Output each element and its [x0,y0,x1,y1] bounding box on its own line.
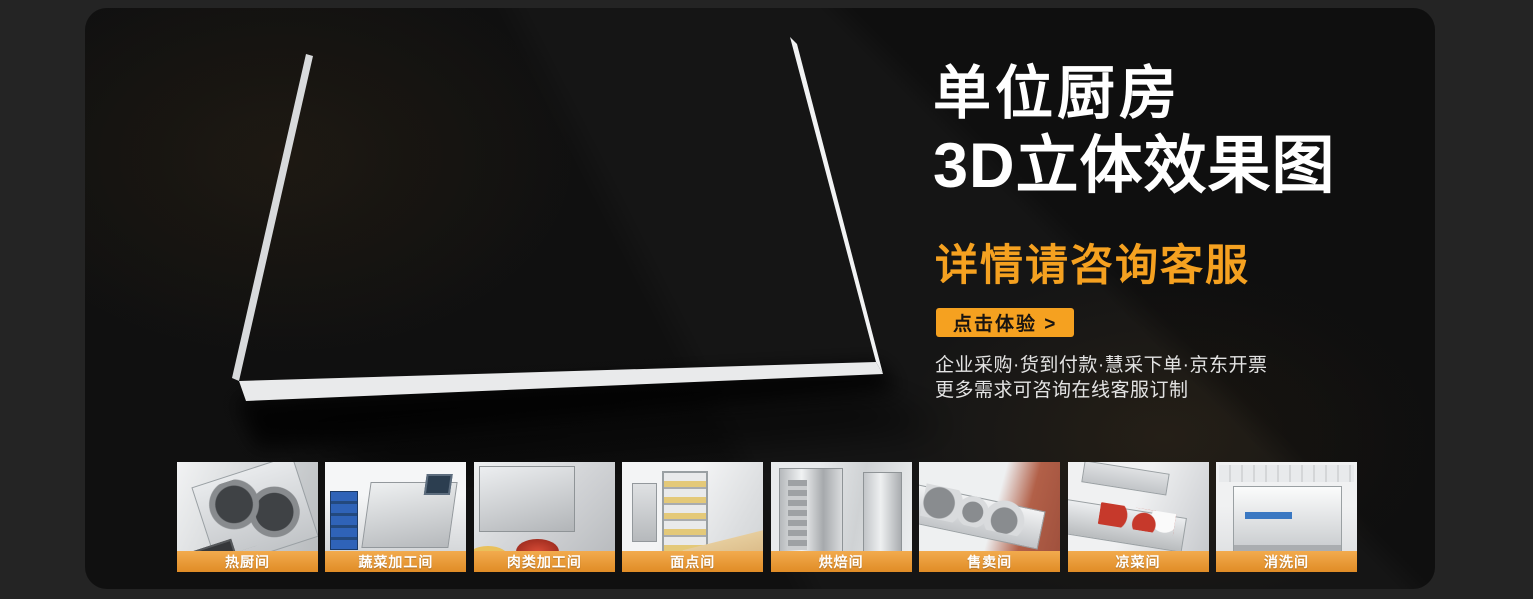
thumbnail-label: 肉类加工间 [474,551,615,572]
outer-walls [239,37,876,381]
blue-dish-machines [303,209,407,234]
thumbnail-label: 热厨间 [177,551,318,572]
right-room-equipment [682,127,852,338]
cook-line [306,127,635,172]
banner-panel: 单位厨房 3D立体效果图 详情请咨询客服 点击体验 > 企业采购·货到付款·慧采… [85,8,1435,589]
hero-title-line2: 3D立体效果图 [933,132,1336,201]
hero-title-line1: 单位厨房 [933,62,1181,126]
page-background: { "hero": { "title_line1": "单位厨房", "titl… [0,0,1533,599]
mid-right-units [652,122,687,214]
thumbnail-item[interactable]: 肉类加工间 [474,462,615,572]
thumbnail-label: 烘焙间 [771,551,912,572]
equipment-shape [479,466,574,532]
food-display-cases [289,317,687,361]
thumbnail-item[interactable]: 烘焙间 [771,462,912,572]
thumbnail-item[interactable]: 蔬菜加工间 [325,462,466,572]
serving-room-tables [287,252,672,345]
equipment-shape [1219,465,1354,482]
floor [253,43,861,369]
thumbnail-item[interactable]: 凉菜间 [1068,462,1209,572]
prep-table [303,170,627,213]
thumbnail-item[interactable]: 售卖间 [919,462,1060,572]
hero-subtitle: 详情请咨询客服 [935,242,1250,291]
thumbnail-label: 消洗间 [1216,551,1357,572]
thumbnail-strip: 热厨间 蔬菜加工间 肉类加工间 面点间 烘焙间 售卖间 [177,462,1357,572]
inner-walls [255,44,859,368]
hero-note-line2: 更多需求可咨询在线客服订制 [935,375,1189,402]
thumbnail-label: 凉菜间 [1068,551,1209,572]
back-room-equipment [313,46,790,114]
thumbnail-item[interactable]: 面点间 [622,462,763,572]
equipment-shape [1233,486,1342,554]
cta-button[interactable]: 点击体验 > [936,308,1074,337]
equipment-shape [330,491,359,550]
thumbnail-item[interactable]: 消洗间 [1216,462,1357,572]
kitchen-3d-floorplan [239,37,876,381]
background-glow-left [85,8,665,388]
thumbnail-label: 蔬菜加工间 [325,551,466,572]
kitchen-trolleys [247,235,295,351]
hero-note-line1: 企业采购·货到付款·慧采下单·京东开票 [935,350,1267,377]
equipment-shape [863,472,902,560]
thumbnail-item[interactable]: 热厨间 [177,462,318,572]
thumbnail-label: 售卖间 [919,551,1060,572]
equipment-shape [362,482,458,548]
thumbnail-label: 面点间 [622,551,763,572]
